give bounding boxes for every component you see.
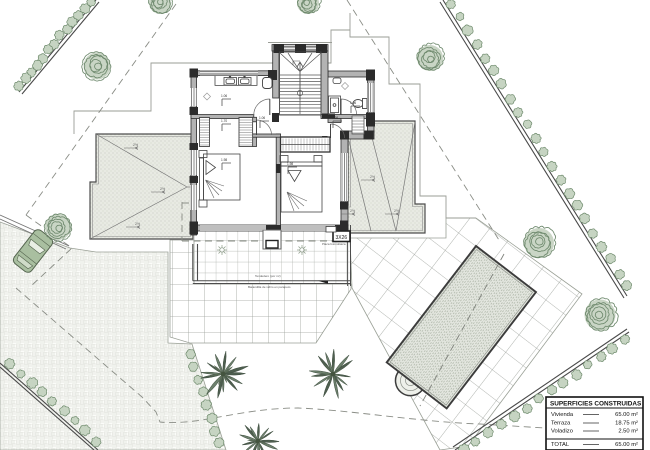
svg-text:3X26: 3X26	[336, 235, 348, 241]
svg-text:Terraza: Terraza	[551, 421, 571, 427]
svg-text:65.00 m²: 65.00 m²	[615, 412, 638, 418]
svg-text:1.98: 1.98	[221, 158, 227, 162]
svg-text:Voladizo: Voladizo	[551, 429, 573, 435]
svg-text:1.06: 1.06	[259, 116, 265, 120]
svg-text:1.70: 1.70	[221, 119, 227, 123]
svg-text:65.00 m²: 65.00 m²	[615, 442, 638, 448]
svg-text:1.06: 1.06	[221, 94, 227, 98]
svg-text:2%: 2%	[135, 222, 140, 226]
svg-text:SUPERFICIES CONSTRUIDAS: SUPERFICIES CONSTRUIDAS	[550, 401, 642, 408]
svg-text:1.06: 1.06	[350, 101, 356, 105]
svg-text:2%: 2%	[160, 187, 165, 191]
svg-text:Barandilla de vidrio en parape: Barandilla de vidrio en parapeto	[248, 285, 291, 289]
svg-text:1.98: 1.98	[332, 116, 338, 120]
svg-text:2.50 m²: 2.50 m²	[618, 429, 638, 435]
svg-text:2%: 2%	[350, 209, 355, 213]
svg-text:Tendedero (por m²): Tendedero (por m²)	[255, 274, 281, 278]
svg-text:1.98: 1.98	[287, 162, 293, 166]
svg-text:2%: 2%	[133, 143, 138, 147]
svg-text:Vivienda: Vivienda	[551, 412, 574, 418]
svg-text:18.75 m²: 18.75 m²	[615, 421, 638, 427]
svg-text:TOTAL: TOTAL	[551, 442, 570, 448]
svg-text:Placa fotovoltaica: Placa fotovoltaica	[322, 242, 346, 246]
svg-text:2%: 2%	[394, 209, 399, 213]
svg-text:2%: 2%	[370, 175, 375, 179]
